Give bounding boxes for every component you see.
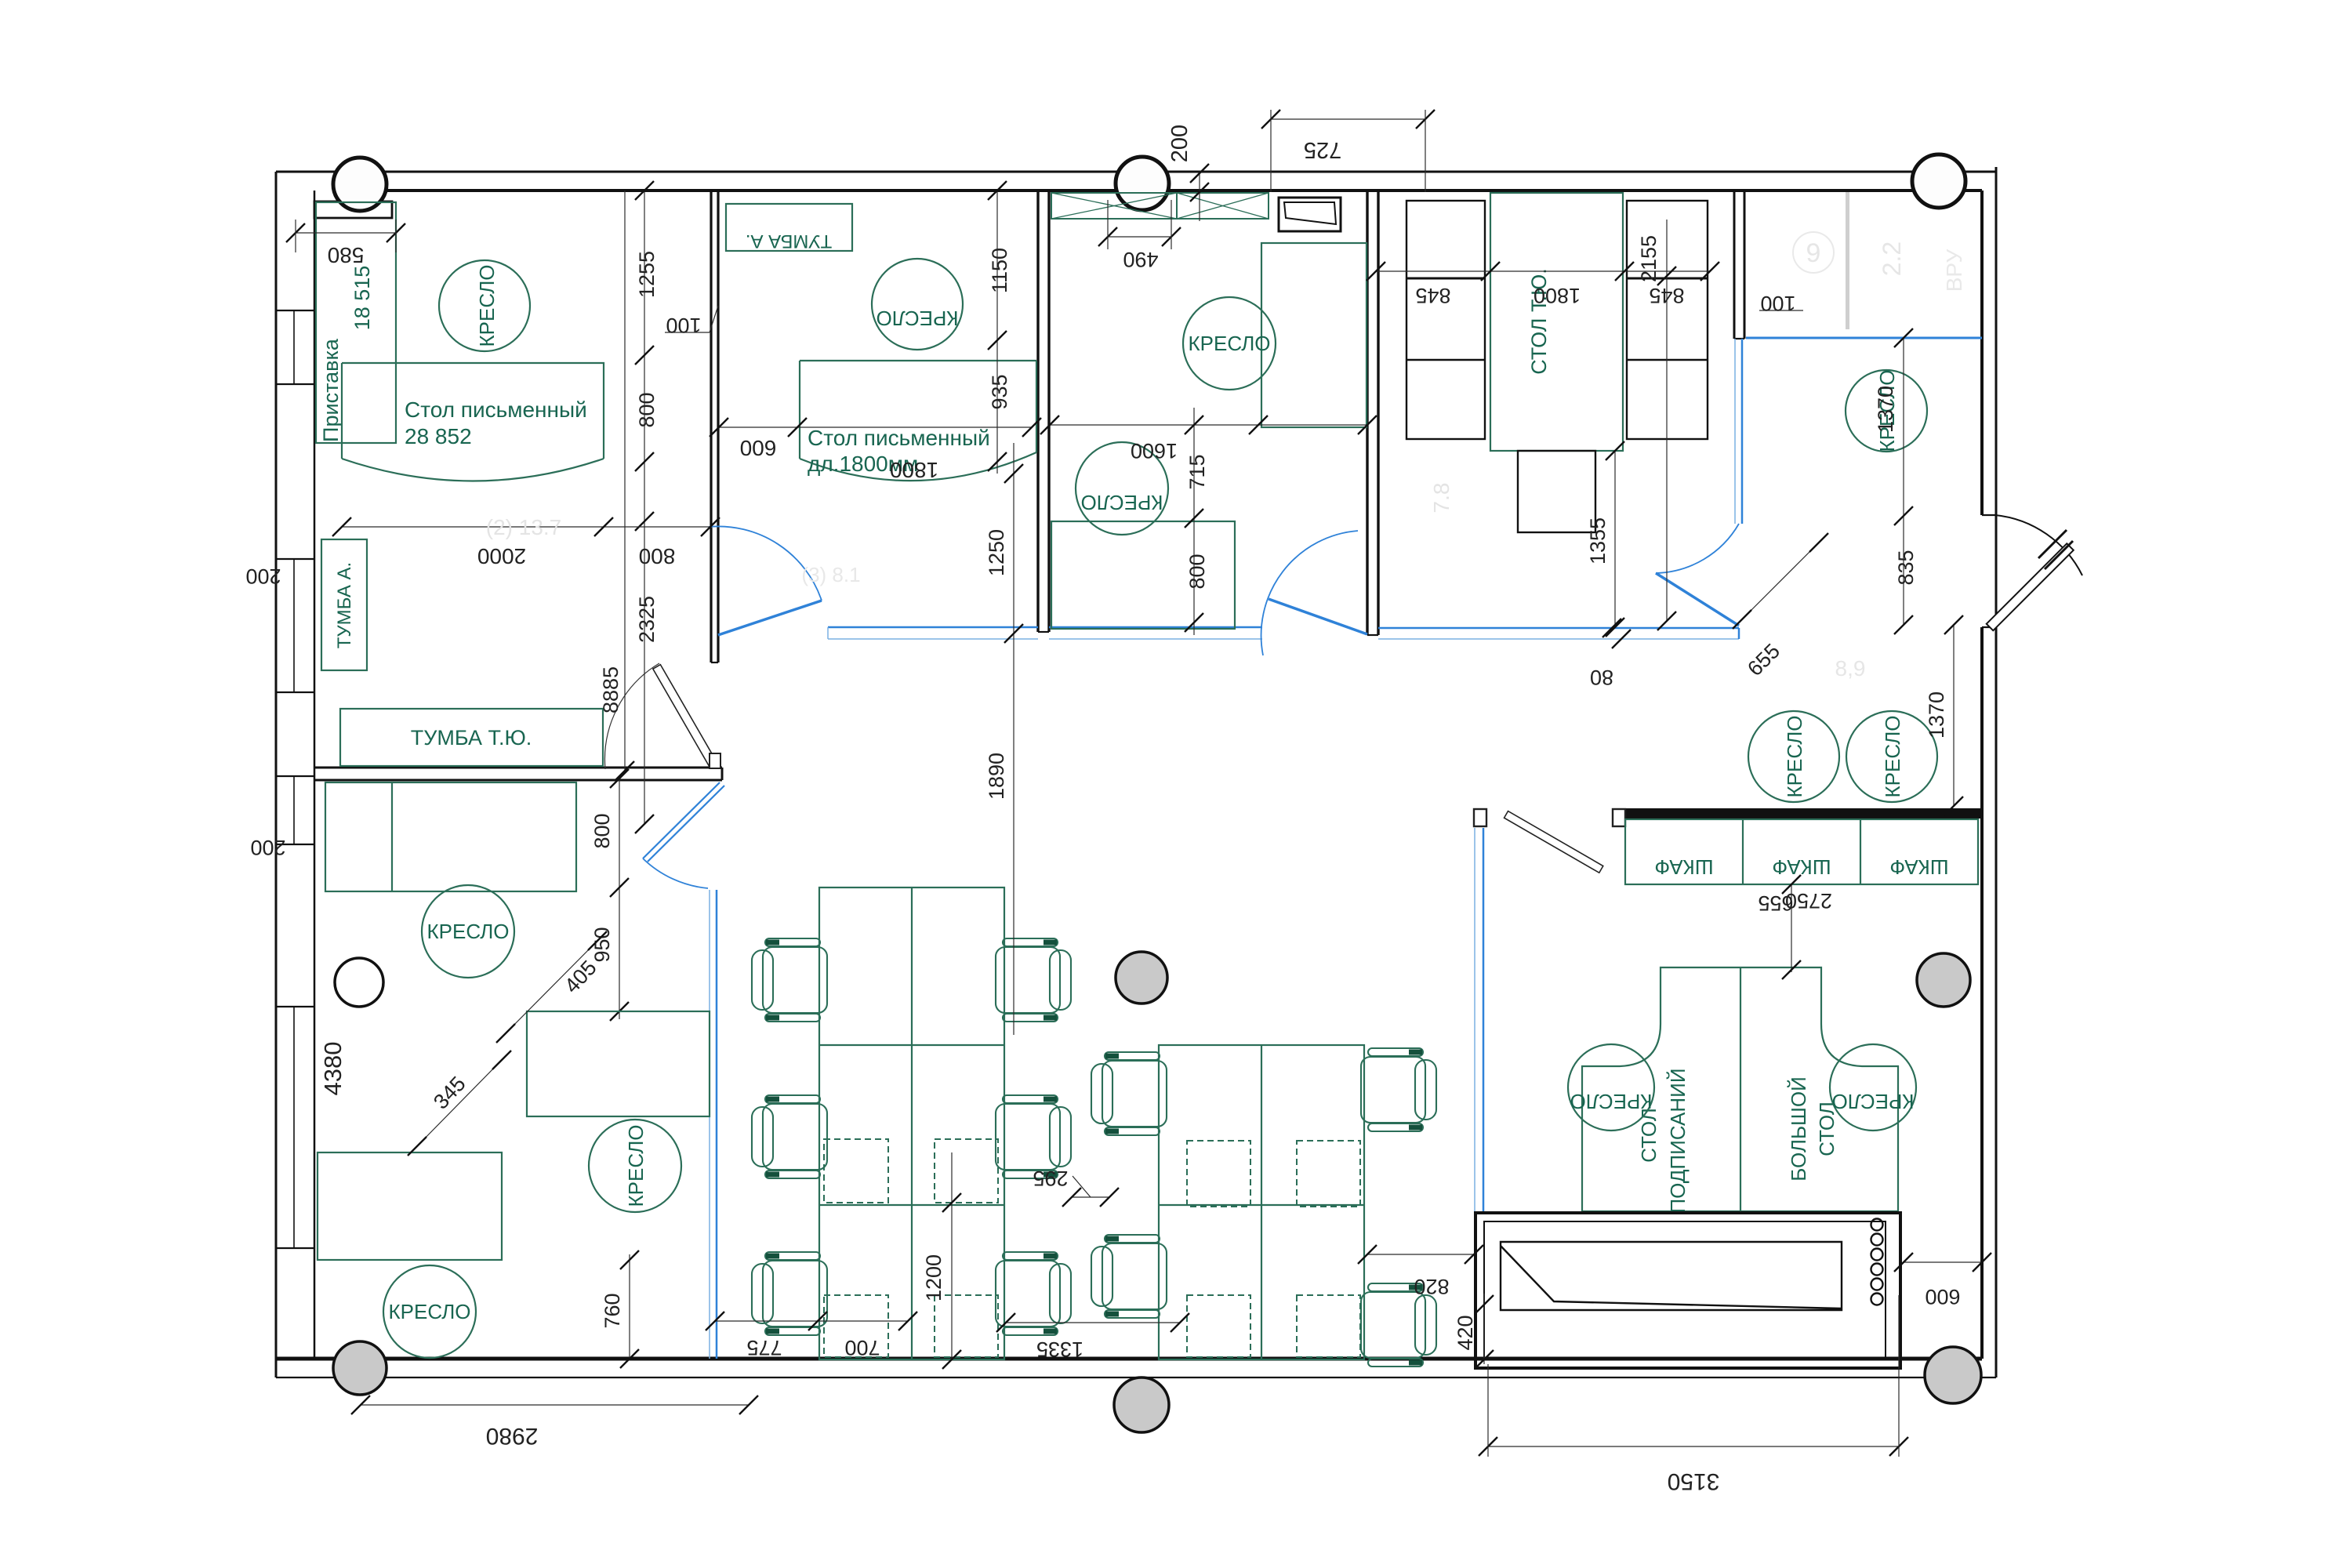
svg-text:18 515: 18 515 bbox=[350, 266, 374, 331]
svg-text:Стол письменный: Стол письменный bbox=[405, 397, 587, 422]
svg-text:ПОДПИСАНИЙ: ПОДПИСАНИЙ bbox=[1666, 1068, 1690, 1213]
svg-text:1200: 1200 bbox=[922, 1254, 946, 1301]
svg-text:9: 9 bbox=[1806, 238, 1821, 268]
svg-text:1800: 1800 bbox=[1534, 284, 1581, 307]
svg-text:Стол письменный: Стол письменный bbox=[808, 426, 990, 450]
svg-text:2155: 2155 bbox=[1637, 235, 1661, 282]
svg-text:800: 800 bbox=[1185, 554, 1209, 589]
svg-text:655: 655 bbox=[1758, 891, 1793, 915]
svg-text:ТУМБА А.: ТУМБА А. bbox=[334, 562, 355, 648]
svg-text:1255: 1255 bbox=[635, 251, 659, 298]
svg-text:420: 420 bbox=[1454, 1315, 1477, 1350]
svg-text:ВРУ: ВРУ bbox=[1942, 249, 1966, 292]
svg-text:80: 80 bbox=[1590, 666, 1613, 689]
svg-text:ТУМБА Т.Ю.: ТУМБА Т.Ю. bbox=[411, 726, 532, 750]
svg-text:800: 800 bbox=[639, 544, 676, 568]
svg-text:2980: 2980 bbox=[486, 1423, 539, 1449]
svg-text:845: 845 bbox=[1415, 284, 1450, 307]
svg-text:7.8: 7.8 bbox=[1429, 483, 1454, 514]
svg-text:1600: 1600 bbox=[1131, 439, 1178, 463]
svg-text:2.2: 2.2 bbox=[1878, 241, 1906, 276]
svg-text:600: 600 bbox=[1925, 1285, 1960, 1308]
svg-text:100: 100 bbox=[666, 314, 701, 337]
svg-text:820: 820 bbox=[1414, 1275, 1449, 1298]
svg-text:490: 490 bbox=[1123, 248, 1158, 271]
svg-text:1150: 1150 bbox=[988, 248, 1011, 293]
svg-text:725: 725 bbox=[1304, 137, 1341, 162]
svg-text:700: 700 bbox=[844, 1336, 880, 1359]
svg-text:935: 935 bbox=[988, 374, 1011, 409]
svg-text:КРЕСЛО: КРЕСЛО bbox=[624, 1124, 648, 1207]
svg-text:760: 760 bbox=[601, 1293, 624, 1328]
svg-text:800: 800 bbox=[590, 813, 614, 848]
svg-text:Приставка: Приставка bbox=[319, 338, 343, 442]
svg-text:3150: 3150 bbox=[1668, 1468, 1720, 1494]
svg-text:1355: 1355 bbox=[1586, 517, 1610, 564]
svg-text:28 852: 28 852 bbox=[405, 424, 472, 448]
svg-text:2325: 2325 bbox=[635, 596, 659, 643]
svg-text:СТОЛ: СТОЛ bbox=[1637, 1108, 1661, 1163]
svg-text:ТУМБА А.: ТУМБА А. bbox=[746, 230, 832, 252]
svg-text:КРЕСЛО: КРЕСЛО bbox=[388, 1300, 470, 1323]
svg-text:КРЕСЛО: КРЕСЛО bbox=[876, 307, 958, 330]
svg-text:295: 295 bbox=[1033, 1167, 1068, 1190]
svg-text:1890: 1890 bbox=[985, 753, 1008, 800]
svg-text:КРЕСЛО: КРЕСЛО bbox=[1188, 332, 1270, 355]
svg-text:(2) 13.7: (2) 13.7 bbox=[486, 515, 562, 539]
svg-text:БОЛЬШОЙ: БОЛЬШОЙ bbox=[1787, 1076, 1810, 1181]
svg-text:600: 600 bbox=[740, 436, 777, 460]
svg-text:ШКАФ: ШКАФ bbox=[1772, 855, 1831, 879]
svg-text:КРЕСЛО: КРЕСЛО bbox=[1080, 491, 1163, 514]
svg-text:1800: 1800 bbox=[890, 458, 938, 482]
svg-text:200: 200 bbox=[250, 836, 285, 859]
svg-text:КРЕСЛО: КРЕСЛО bbox=[1783, 715, 1806, 797]
svg-text:1370: 1370 bbox=[1874, 386, 1897, 433]
svg-text:2000: 2000 bbox=[477, 544, 526, 568]
svg-text:ШКАФ: ШКАФ bbox=[1889, 855, 1948, 879]
svg-text:КРЕСЛО: КРЕСЛО bbox=[1881, 715, 1904, 797]
svg-text:580: 580 bbox=[328, 243, 365, 267]
svg-text:715: 715 bbox=[1185, 454, 1209, 489]
svg-text:(3) 8.1: (3) 8.1 bbox=[801, 563, 860, 586]
svg-text:775: 775 bbox=[746, 1336, 782, 1359]
svg-text:200: 200 bbox=[1167, 125, 1192, 162]
svg-text:КРЕСЛО: КРЕСЛО bbox=[475, 264, 499, 347]
svg-text:1250: 1250 bbox=[985, 529, 1008, 576]
svg-text:8885: 8885 bbox=[599, 666, 622, 713]
svg-text:835: 835 bbox=[1894, 550, 1918, 585]
svg-text:8,9: 8,9 bbox=[1835, 656, 1866, 681]
svg-text:КРЕСЛО: КРЕСЛО bbox=[1831, 1090, 1914, 1113]
svg-text:ШКАФ: ШКАФ bbox=[1654, 855, 1713, 879]
svg-text:1335: 1335 bbox=[1036, 1338, 1083, 1361]
svg-text:КРЕСЛО: КРЕСЛО bbox=[1570, 1090, 1652, 1113]
svg-text:800: 800 bbox=[635, 392, 659, 427]
svg-text:100: 100 bbox=[1760, 292, 1795, 315]
svg-text:200: 200 bbox=[245, 564, 281, 588]
svg-text:4380: 4380 bbox=[319, 1042, 347, 1096]
svg-text:КРЕСЛО: КРЕСЛО bbox=[426, 920, 509, 943]
svg-text:1370: 1370 bbox=[1925, 691, 1948, 739]
